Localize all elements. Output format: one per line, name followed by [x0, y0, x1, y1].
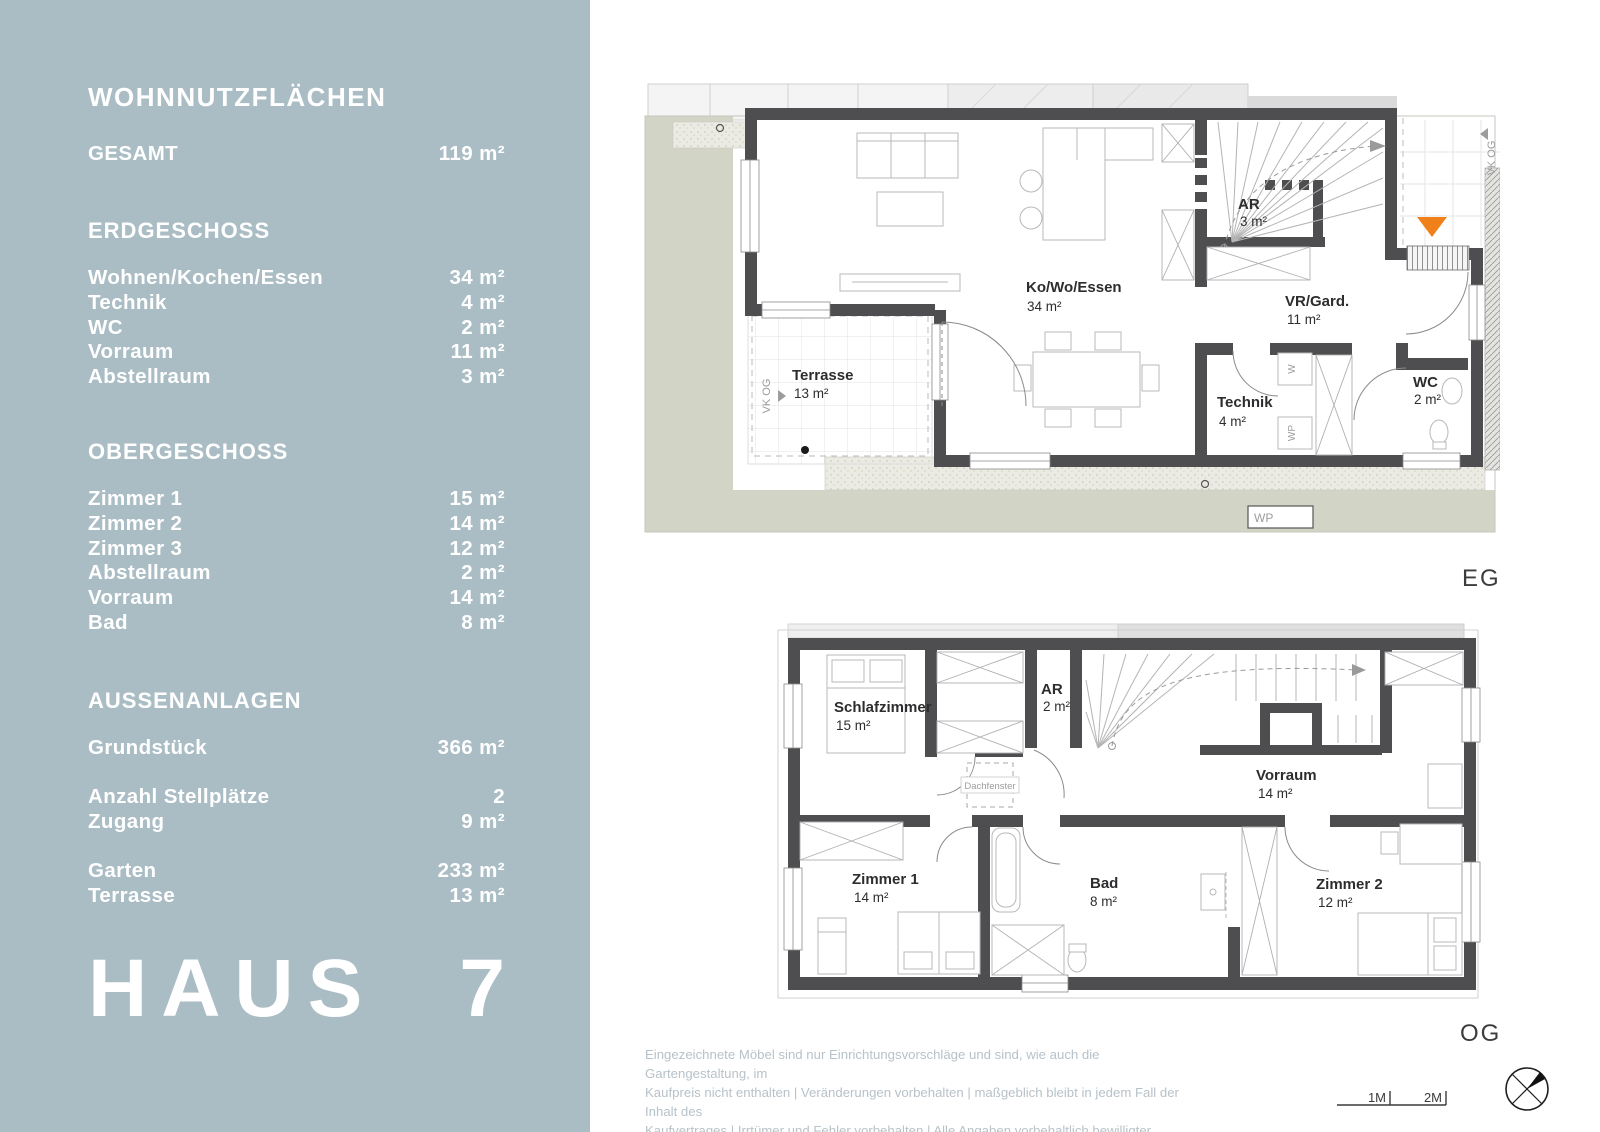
room-label-terrasse: Terrasse: [792, 367, 853, 384]
room-area-ar: 3 m²: [1240, 214, 1268, 229]
room-area-zimmer2: 12 m²: [1318, 895, 1353, 910]
disclaimer-line: Kaufpreis nicht enthalten | Veränderunge…: [645, 1083, 1185, 1121]
area-row: Zugang9 m²: [88, 810, 505, 835]
row-value: 34 m²: [449, 266, 505, 291]
row-value: 11 m²: [451, 340, 505, 365]
vk-og-left-label: VK OG: [761, 379, 773, 414]
room-label-technik: Technik: [1217, 394, 1273, 411]
page-title: WOHNNUTZFLÄCHEN: [88, 82, 505, 113]
room-label-vorraum: Vorraum: [1256, 767, 1317, 784]
floor-label-eg: EG: [1462, 565, 1501, 593]
area-row: WC2 m²: [88, 316, 505, 341]
room-area-wc: 2 m²: [1414, 392, 1442, 407]
row-value: 233 m²: [438, 859, 505, 884]
room-label-bad: Bad: [1090, 875, 1118, 892]
gesamt-row: GESAMT 119 m²: [88, 142, 505, 167]
row-value: 2 m²: [461, 316, 505, 341]
floorplan-eg: WP Ko/Wo/Essen 34 m² AR 3 m² VR/Gard. 11…: [640, 60, 1500, 600]
row-value: 119 m²: [439, 142, 505, 167]
row-label: Terrasse: [88, 884, 175, 909]
area-row: Zimmer 115 m²: [88, 487, 505, 512]
room-label-ar: AR: [1238, 196, 1260, 213]
row-label: Vorraum: [88, 340, 174, 365]
eg-party-wall: [1485, 168, 1500, 470]
area-row: Terrasse13 m²: [88, 884, 505, 909]
area-row: Zimmer 214 m²: [88, 512, 505, 537]
area-row: Technik4 m²: [88, 291, 505, 316]
room-label-zimmer1: Zimmer 1: [852, 871, 919, 888]
row-label: Vorraum: [88, 586, 174, 611]
row-label: Abstellraum: [88, 365, 211, 390]
house-number: 7: [459, 948, 505, 1030]
dachfenster-label: Dachfenster: [964, 781, 1015, 792]
row-value: 2 m²: [461, 561, 505, 586]
eg-wp-box: WP: [1248, 506, 1313, 528]
area-row: Grundstück366 m²: [88, 736, 505, 761]
row-label: Bad: [88, 611, 128, 636]
floorplan-og: Dachfenster Schlafzimmer 15 m² AR 2 m² V…: [760, 600, 1500, 1040]
section-heading-aussenanlagen: AUSSENANLAGEN: [88, 688, 505, 714]
house-title: HAUS 7: [88, 948, 505, 1030]
section-heading-erdgeschoss: ERDGESCHOSS: [88, 218, 505, 244]
row-value: 12 m²: [449, 537, 505, 562]
room-area-terrasse: 13 m²: [794, 386, 829, 401]
room-area-bad: 8 m²: [1090, 894, 1118, 909]
disclaimer: Eingezeichnete Möbel sind nur Einrichtun…: [645, 1045, 1185, 1132]
north-arrow-icon: [1498, 1058, 1556, 1118]
row-value: 14 m²: [449, 512, 505, 537]
row-value: 8 m²: [461, 611, 505, 636]
section-heading-obergeschoss: OBERGESCHOSS: [88, 439, 505, 465]
room-area-vorraum: 14 m²: [1258, 786, 1293, 801]
row-label: Zimmer 2: [88, 512, 182, 537]
row-label: Zimmer 3: [88, 537, 182, 562]
row-label: Wohnen/Kochen/Essen: [88, 266, 323, 291]
room-area-ar: 2 m²: [1043, 699, 1071, 714]
room-label-schlafzimmer: Schlafzimmer: [834, 699, 932, 716]
area-row: Garten233 m²: [88, 859, 505, 884]
entrance-marker-icon: [1417, 217, 1447, 237]
appliance-w-label: W: [1287, 364, 1298, 374]
row-label: Zugang: [88, 810, 164, 835]
row-value: 9 m²: [461, 810, 505, 835]
room-label-kowo: Ko/Wo/Essen: [1026, 279, 1122, 296]
area-row: Vorraum14 m²: [88, 586, 505, 611]
og-rows: Zimmer 115 m² Zimmer 214 m² Zimmer 312 m…: [88, 487, 505, 636]
area-row: Anzahl Stellplätze2: [88, 785, 505, 810]
row-label: WC: [88, 316, 123, 341]
room-area-vr: 11 m²: [1287, 312, 1321, 327]
row-value: 14 m²: [449, 586, 505, 611]
floor-label-og: OG: [1460, 1020, 1501, 1048]
appliance-wp-label: WP: [1287, 425, 1298, 441]
scale-1m-label: 1M: [1368, 1090, 1386, 1105]
sidebar: WOHNNUTZFLÄCHEN GESAMT 119 m² ERDGESCHOS…: [0, 0, 590, 1132]
room-area-kowo: 34 m²: [1027, 299, 1062, 314]
disclaimer-line: Kaufvertrages | Irrtümer und Fehler vorb…: [645, 1121, 1185, 1132]
area-row: Abstellraum3 m²: [88, 365, 505, 390]
room-area-technik: 4 m²: [1219, 414, 1247, 429]
aussen-rows-2: Anzahl Stellplätze2 Zugang9 m²: [88, 785, 505, 835]
area-row: Vorraum11 m²: [88, 340, 505, 365]
room-area-zimmer1: 14 m²: [854, 890, 889, 905]
house-name: HAUS: [88, 948, 376, 1030]
room-area-schlafzimmer: 15 m²: [836, 718, 871, 733]
row-label: Garten: [88, 859, 156, 884]
row-value: 15 m²: [449, 487, 505, 512]
row-value: 3 m²: [461, 365, 505, 390]
aussen-rows-3: Garten233 m² Terrasse13 m²: [88, 859, 505, 909]
row-value: 366 m²: [438, 736, 505, 761]
row-value: 13 m²: [449, 884, 505, 909]
scale-2m-label: 2M: [1424, 1090, 1442, 1105]
scale-bar: 1M 2M: [1300, 1082, 1460, 1110]
eg-rows: Wohnen/Kochen/Essen34 m² Technik4 m² WC2…: [88, 266, 505, 390]
disclaimer-line: Eingezeichnete Möbel sind nur Einrichtun…: [645, 1045, 1185, 1083]
vk-og-right-label: VK OG: [1486, 141, 1498, 176]
row-label: Grundstück: [88, 736, 207, 761]
page: WOHNNUTZFLÄCHEN GESAMT 119 m² ERDGESCHOS…: [0, 0, 1600, 1132]
room-label-ar: AR: [1041, 681, 1063, 698]
area-row: Abstellraum2 m²: [88, 561, 505, 586]
row-label: Abstellraum: [88, 561, 211, 586]
room-label-vr: VR/Gard.: [1285, 293, 1349, 310]
row-label: GESAMT: [88, 142, 178, 167]
row-value: 2: [493, 785, 505, 810]
room-label-wc: WC: [1413, 374, 1438, 391]
row-label: Anzahl Stellplätze: [88, 785, 269, 810]
row-label: Technik: [88, 291, 167, 316]
area-row: Bad8 m²: [88, 611, 505, 636]
room-label-zimmer2: Zimmer 2: [1316, 876, 1383, 893]
row-value: 4 m²: [461, 291, 505, 316]
area-row: Wohnen/Kochen/Essen34 m²: [88, 266, 505, 291]
eg-terrace: [748, 312, 932, 464]
eg-doormat: [1407, 246, 1469, 270]
wp-box-label: WP: [1254, 511, 1273, 525]
area-row: Zimmer 312 m²: [88, 537, 505, 562]
row-label: Zimmer 1: [88, 487, 182, 512]
